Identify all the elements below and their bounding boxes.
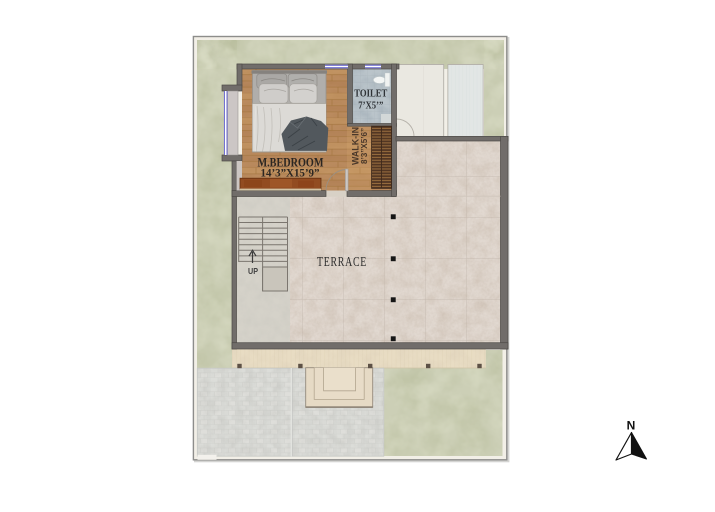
- svg-text:8’3”X5’6”: 8’3”X5’6”: [360, 128, 369, 164]
- svg-text:TOILET: TOILET: [354, 89, 387, 100]
- svg-text:7’X5’”: 7’X5’”: [358, 101, 383, 112]
- svg-text:WALK-IN: WALK-IN: [350, 127, 360, 165]
- svg-text:UP: UP: [248, 266, 258, 276]
- svg-text:TERRACE: TERRACE: [317, 254, 367, 269]
- svg-text:N: N: [627, 419, 636, 433]
- svg-text:14’3”X15’9”: 14’3”X15’9”: [261, 165, 320, 179]
